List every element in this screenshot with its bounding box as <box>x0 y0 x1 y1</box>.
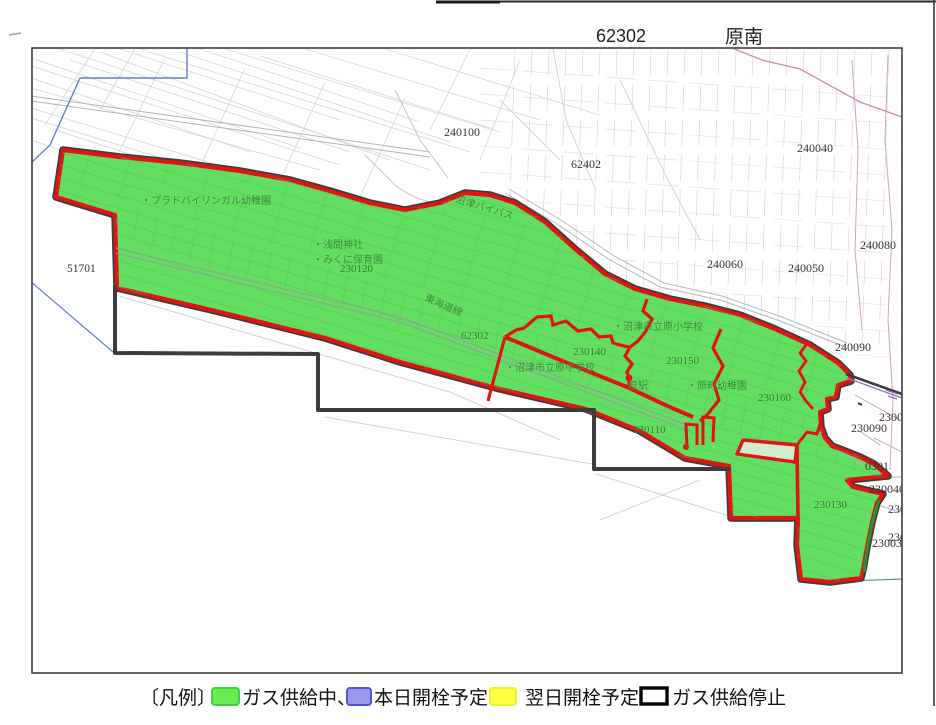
svg-text:・プラドバイリンガル幼稚園: ・プラドバイリンガル幼稚園 <box>141 194 271 207</box>
svg-text:ガス供給停止: ガス供給停止 <box>672 687 786 709</box>
svg-text:240040: 240040 <box>797 141 833 155</box>
svg-text:230130: 230130 <box>814 499 848 511</box>
svg-text:翌日開栓予定: 翌日開栓予定 <box>525 687 639 709</box>
svg-text:240100: 240100 <box>444 125 480 139</box>
svg-text:62402: 62402 <box>571 157 601 171</box>
svg-text:240060: 240060 <box>707 257 743 271</box>
svg-text:・みくに保育園: ・みくに保育園 <box>313 253 383 266</box>
svg-text:230150: 230150 <box>666 355 700 367</box>
svg-text:・浅間神社: ・浅間神社 <box>313 238 363 251</box>
svg-text:240080: 240080 <box>860 238 896 252</box>
svg-text:240090: 240090 <box>835 340 871 354</box>
svg-text:230110: 230110 <box>633 424 666 436</box>
svg-text:0301: 0301 <box>865 459 889 473</box>
svg-text:・原町幼稚園: ・原町幼稚園 <box>687 379 747 392</box>
svg-text:230140: 230140 <box>573 346 607 358</box>
svg-text:・沼津市立原小学校: ・沼津市立原小学校 <box>613 320 703 333</box>
svg-text:ガス供給中、: ガス供給中、 <box>242 687 356 709</box>
svg-text:62302: 62302 <box>461 330 489 342</box>
svg-text:〔凡例〕: 〔凡例〕 <box>140 687 216 709</box>
svg-text:230090: 230090 <box>851 421 887 435</box>
svg-text:51701: 51701 <box>67 263 96 275</box>
svg-text:62302: 62302 <box>596 26 646 46</box>
svg-text:原駅: 原駅 <box>628 380 648 392</box>
svg-text:240050: 240050 <box>788 261 824 275</box>
svg-text:230160: 230160 <box>758 392 792 404</box>
svg-text:230040: 230040 <box>869 482 905 496</box>
svg-text:・沼津市立原中学校: ・沼津市立原中学校 <box>505 361 595 374</box>
svg-text:原南: 原南 <box>725 26 763 48</box>
svg-text:本日開栓予定: 本日開栓予定 <box>374 687 488 709</box>
